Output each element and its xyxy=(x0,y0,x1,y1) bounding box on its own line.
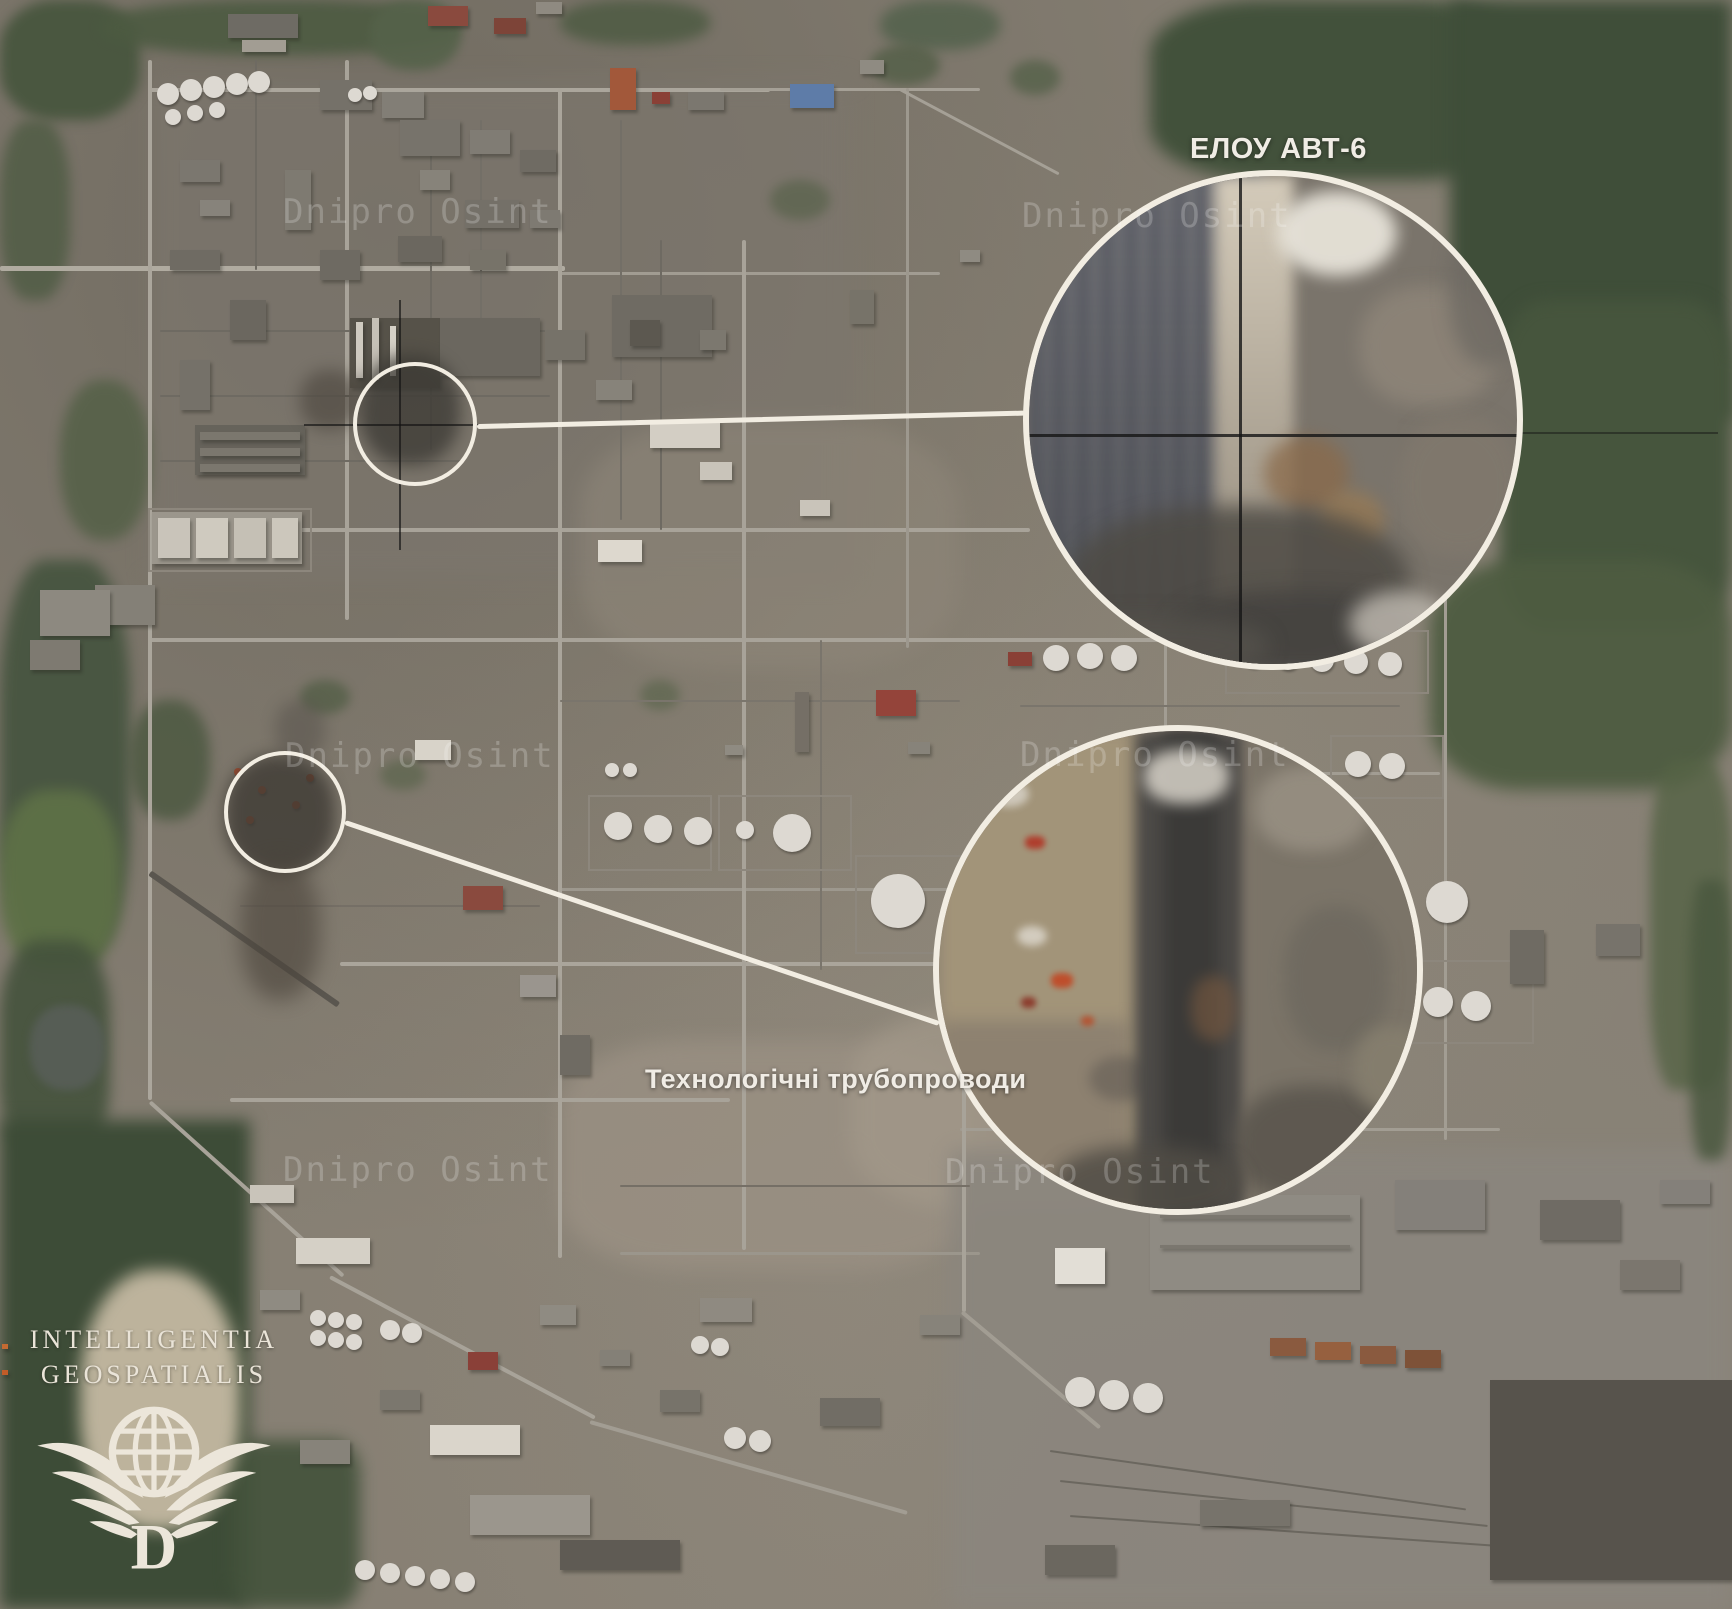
road xyxy=(589,1420,907,1515)
building xyxy=(1315,1342,1351,1360)
building xyxy=(652,92,670,104)
watermark-text: Dnipro Osint xyxy=(283,192,553,232)
vegetation-patch xyxy=(880,0,1000,50)
magnifier-blob xyxy=(1051,973,1073,988)
storage-tank xyxy=(1426,881,1468,923)
building xyxy=(876,690,916,716)
storage-tank xyxy=(1133,1383,1163,1413)
storage-tank xyxy=(871,874,925,928)
watermark-text: Dnipro Osint xyxy=(285,736,555,776)
building xyxy=(272,518,298,558)
storage-tank xyxy=(328,1332,344,1348)
building xyxy=(1360,1346,1396,1364)
building xyxy=(920,1315,960,1335)
building xyxy=(545,330,585,360)
building xyxy=(400,120,460,156)
vegetation-patch xyxy=(640,680,680,710)
vegetation-patch xyxy=(770,180,830,220)
building xyxy=(725,745,743,755)
watermark-text: Dnipro Osint xyxy=(1020,735,1290,775)
brand-name-line2: GEOSPATIALIS xyxy=(28,1357,280,1392)
magnifier-circle-avt6 xyxy=(1023,170,1523,670)
storage-tank xyxy=(604,812,632,840)
magnifier-blob xyxy=(989,781,1029,807)
building xyxy=(800,500,830,516)
storage-tank xyxy=(402,1323,422,1343)
building xyxy=(1540,1200,1620,1240)
winged-globe-icon: D xyxy=(29,1402,279,1577)
building xyxy=(1405,1350,1441,1368)
magnifier-blob xyxy=(1349,591,1449,656)
storage-tank xyxy=(691,1336,709,1354)
brand-name-line1: INTELLIGENTIA xyxy=(28,1322,280,1357)
logo-monogram: D xyxy=(131,1511,178,1577)
building xyxy=(560,1035,590,1075)
building xyxy=(700,1298,752,1322)
road xyxy=(620,1252,980,1255)
watermark-text: Dnipro Osint xyxy=(1022,196,1292,236)
building xyxy=(795,692,809,752)
magnifier-blob xyxy=(1399,416,1519,556)
building xyxy=(398,236,442,262)
building xyxy=(430,1425,520,1455)
vegetation-patch xyxy=(30,1005,105,1090)
building xyxy=(470,1495,590,1535)
storage-tank xyxy=(248,71,270,93)
building xyxy=(170,250,220,270)
road xyxy=(340,962,960,966)
building xyxy=(560,1540,680,1570)
building xyxy=(1045,1545,1115,1575)
magnifier-blob xyxy=(1354,1026,1423,1111)
building xyxy=(700,330,726,350)
building xyxy=(40,590,110,636)
building xyxy=(468,1352,498,1370)
building xyxy=(520,150,556,172)
storage-tank xyxy=(711,1338,729,1356)
callout-label-avt6: ЕЛОУ АВТ-6 xyxy=(1190,133,1367,166)
building xyxy=(960,250,980,262)
vegetation-patch xyxy=(560,0,710,45)
building xyxy=(1510,930,1544,984)
building xyxy=(242,40,286,52)
storage-tank xyxy=(623,763,637,777)
building xyxy=(630,320,660,346)
building xyxy=(536,2,562,14)
building xyxy=(180,160,220,182)
magnifier-blob xyxy=(1191,976,1236,1041)
storage-tank xyxy=(644,815,672,843)
magnifier-blob xyxy=(1017,926,1047,946)
magnifier-circle-pipelines xyxy=(933,725,1423,1215)
road xyxy=(230,1098,730,1102)
crosshair-vertical-line xyxy=(1239,176,1242,670)
building xyxy=(1270,1338,1306,1356)
storage-tank xyxy=(605,763,619,777)
storage-tank xyxy=(348,88,362,102)
damage-smudge xyxy=(240,860,320,1000)
building xyxy=(596,380,632,400)
magnifier-blob xyxy=(1021,997,1036,1008)
storage-tank xyxy=(380,1563,400,1583)
building xyxy=(1200,1500,1290,1526)
storage-tank xyxy=(684,817,712,845)
road xyxy=(660,240,662,530)
building xyxy=(380,1390,420,1410)
road xyxy=(620,1185,970,1187)
building xyxy=(463,886,503,910)
road xyxy=(720,88,980,91)
building xyxy=(200,432,300,440)
building xyxy=(230,300,266,340)
building xyxy=(540,1305,576,1325)
building xyxy=(196,518,228,558)
storage-tank xyxy=(1461,991,1491,1021)
storage-tank xyxy=(187,105,203,121)
storage-tank xyxy=(226,73,248,95)
building xyxy=(1596,924,1640,956)
storage-tank xyxy=(346,1334,362,1350)
road xyxy=(329,1275,596,1419)
vegetation-patch xyxy=(0,120,70,300)
magnifier-blob xyxy=(1081,1016,1094,1026)
storage-tank xyxy=(455,1572,475,1592)
vegetation-patch xyxy=(130,700,210,820)
building xyxy=(200,200,230,216)
storage-tank xyxy=(430,1569,450,1589)
road xyxy=(1020,705,1400,707)
magnifier-content-avt6 xyxy=(1029,176,1517,664)
building xyxy=(1660,1180,1710,1204)
storage-tank xyxy=(773,814,811,852)
building xyxy=(200,464,300,472)
source-circle-avt6 xyxy=(353,362,477,486)
building xyxy=(790,84,834,108)
building xyxy=(440,318,540,376)
storage-tank xyxy=(380,1320,400,1340)
storage-tank xyxy=(180,79,202,101)
building xyxy=(850,290,874,324)
magnifier-blob xyxy=(1025,836,1045,849)
building xyxy=(200,448,300,456)
building xyxy=(300,1440,350,1464)
road xyxy=(150,638,1160,642)
watermark-text: Dnipro Osint xyxy=(945,1152,1215,1192)
building xyxy=(30,640,80,670)
building xyxy=(260,1290,300,1310)
storage-tank xyxy=(310,1330,326,1346)
building xyxy=(1160,1245,1350,1248)
storage-tank xyxy=(736,821,754,839)
road xyxy=(345,60,349,620)
building xyxy=(1490,1380,1732,1580)
building xyxy=(470,130,510,154)
storage-tank xyxy=(165,109,181,125)
vegetation-patch xyxy=(1010,60,1060,95)
building xyxy=(600,1350,630,1366)
building xyxy=(700,462,732,480)
building xyxy=(2,1344,8,1349)
building xyxy=(860,60,884,74)
vegetation-patch xyxy=(60,380,150,540)
building xyxy=(320,250,360,280)
magnifier-blob xyxy=(1255,766,1370,851)
building xyxy=(610,68,636,110)
road xyxy=(558,88,562,1258)
storage-tank xyxy=(346,1314,362,1330)
building xyxy=(356,322,363,378)
building xyxy=(296,1238,370,1264)
building xyxy=(520,975,556,997)
building xyxy=(2,1370,8,1375)
magnifier-blob xyxy=(1277,191,1397,276)
magnifier-blob xyxy=(1449,206,1523,366)
building xyxy=(1620,1260,1680,1290)
building xyxy=(234,518,266,558)
building xyxy=(382,92,424,118)
satellite-image: ЕЛОУ АВТ-6 Технологічні трубопроводи Dni… xyxy=(0,0,1732,1609)
watermark-text: Dnipro Osint xyxy=(283,1150,553,1190)
storage-tank xyxy=(1423,987,1453,1017)
storage-tank xyxy=(1065,1377,1095,1407)
building xyxy=(158,518,190,558)
road xyxy=(560,272,940,275)
storage-tank xyxy=(209,102,225,118)
building xyxy=(494,18,526,34)
building xyxy=(612,295,712,357)
storage-tank xyxy=(328,1312,344,1328)
storage-tank xyxy=(405,1566,425,1586)
storage-tank xyxy=(363,86,377,100)
storage-tank xyxy=(203,76,225,98)
building xyxy=(228,14,298,38)
road xyxy=(906,88,909,648)
storage-tank xyxy=(355,1560,375,1580)
building xyxy=(420,170,450,190)
storage-tank xyxy=(749,1430,771,1452)
building xyxy=(688,92,724,110)
callout-label-pipelines: Технологічні трубопроводи xyxy=(645,1064,1026,1095)
building xyxy=(1055,1248,1105,1284)
storage-tank xyxy=(310,1310,326,1326)
storage-tank xyxy=(724,1427,746,1449)
road xyxy=(899,88,1059,175)
building xyxy=(820,1398,880,1426)
building xyxy=(908,742,930,754)
brand-logo: INTELLIGENTIA GEOSPATIALIS xyxy=(28,1322,280,1582)
magnifier-content-pipelines xyxy=(939,731,1417,1209)
building xyxy=(428,6,468,26)
building xyxy=(180,360,210,410)
building xyxy=(1160,1215,1350,1218)
road xyxy=(148,60,152,1100)
building xyxy=(660,1390,700,1412)
building xyxy=(598,540,642,562)
crosshair-horizontal-line xyxy=(1029,434,1523,437)
magnifier-blob xyxy=(1029,616,1269,670)
map-crosshair-extension xyxy=(1518,432,1718,434)
storage-tank xyxy=(157,83,179,105)
vegetation-patch xyxy=(1690,880,1732,1160)
storage-tank xyxy=(1099,1380,1129,1410)
building xyxy=(470,250,506,270)
damage-smudge xyxy=(300,370,360,430)
